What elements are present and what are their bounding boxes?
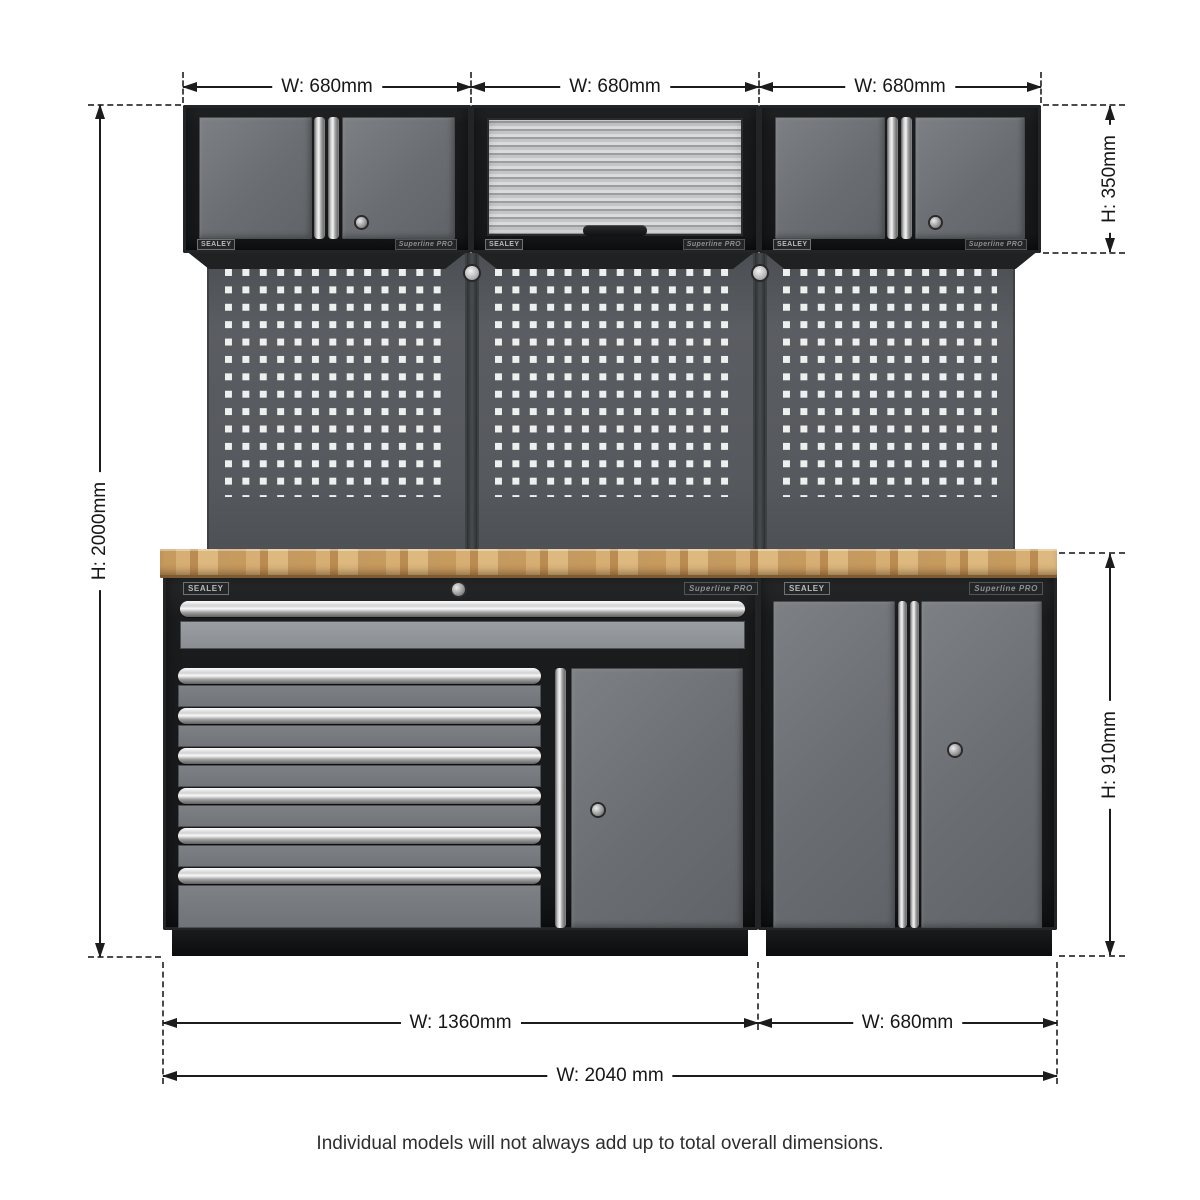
- dimension-label: W: 680mm: [845, 76, 955, 98]
- cabinet-door: [773, 601, 895, 928]
- pegboard-panel-left: [207, 253, 467, 553]
- pegboard-holes: [495, 269, 737, 497]
- drawer-handle: [178, 868, 541, 884]
- pegboard-seam: [755, 253, 765, 553]
- cabinet-door: [921, 601, 1042, 928]
- base-unit-drawers: SEALEY Superline PRO: [163, 575, 758, 930]
- wall-cabinet-underside: [471, 253, 759, 269]
- lock-icon: [452, 583, 465, 596]
- lock-icon: [356, 217, 367, 228]
- door-handle: [314, 117, 325, 239]
- cabinet-door: [571, 668, 743, 928]
- door-handle: [887, 117, 898, 239]
- plinth: [172, 930, 748, 956]
- drawer-handle: [178, 708, 541, 724]
- drawer-handle: [178, 828, 541, 844]
- brand-badge: SEALEY: [197, 239, 235, 250]
- door-handle: [328, 117, 339, 239]
- dimension-overall-width: W: 2040 mm: [163, 1075, 1057, 1077]
- dimension-label: H: 910mm: [1099, 701, 1121, 809]
- series-badge: Superline PRO: [969, 582, 1043, 595]
- series-badge: Superline PRO: [965, 239, 1027, 250]
- brand-badge: SEALEY: [773, 239, 811, 250]
- brand-badge: SEALEY: [784, 582, 830, 595]
- roller-shutter-door: [487, 118, 743, 236]
- drawer-front: [178, 805, 541, 827]
- pegboard-knob: [465, 266, 479, 280]
- pegboard-holes: [783, 269, 997, 497]
- door-handle: [901, 117, 912, 239]
- drawer-handle: [180, 601, 745, 617]
- pegboard-knob: [753, 266, 767, 280]
- dimension-wall-unit-height: H: 350mm: [1109, 106, 1111, 252]
- wall-cabinet-left: SEALEY Superline PRO: [183, 105, 471, 253]
- dimension-label: W: 2040 mm: [547, 1065, 672, 1087]
- door-handle: [910, 601, 919, 928]
- dimension-base-unit-height: H: 910mm: [1109, 554, 1111, 955]
- series-badge: Superline PRO: [684, 582, 758, 595]
- dimension-label: H: 350mm: [1099, 125, 1121, 233]
- drawer-front: [178, 765, 541, 787]
- extension-line: [1059, 552, 1125, 554]
- dimension-top-middle: W: 680mm: [471, 86, 759, 88]
- drawer-front: [178, 685, 541, 707]
- wall-cabinet-underside: [759, 253, 1041, 269]
- dimension-top-left: W: 680mm: [183, 86, 471, 88]
- drawer-handle: [178, 668, 541, 684]
- dimension-base-width-left: W: 1360mm: [163, 1022, 758, 1024]
- series-badge: Superline PRO: [395, 239, 457, 250]
- brand-badge: SEALEY: [183, 582, 229, 595]
- dimension-base-width-right: W: 680mm: [758, 1022, 1057, 1024]
- brand-badge: SEALEY: [485, 239, 523, 250]
- dimension-label: W: 680mm: [560, 76, 670, 98]
- drawer-front: [178, 725, 541, 747]
- wall-cabinet-underside: [183, 253, 471, 269]
- lock-icon: [949, 744, 961, 756]
- cabinet-door: [199, 117, 312, 239]
- wall-cabinet-right: SEALEY Superline PRO: [759, 105, 1041, 253]
- dimension-label: H: 2000mm: [89, 472, 111, 590]
- lock-icon: [592, 804, 604, 816]
- dimension-overall-height: H: 2000mm: [99, 105, 101, 957]
- dimension-label: W: 1360mm: [400, 1012, 520, 1034]
- base-unit-two-door: SEALEY Superline PRO: [758, 575, 1057, 930]
- garage-storage-system-diagram: SEALEY Superline PRO SEALEY Superline PR…: [0, 0, 1200, 1200]
- footnote-text: Individual models will not always add up…: [0, 1133, 1200, 1155]
- drawer-front-bottom: [178, 885, 541, 928]
- shutter-handle: [583, 225, 647, 236]
- plinth: [766, 930, 1052, 956]
- drawer-handle: [178, 788, 541, 804]
- lock-icon: [930, 217, 941, 228]
- pegboard-panel-right: [765, 253, 1015, 553]
- drawer-front: [178, 845, 541, 867]
- door-handle: [555, 668, 566, 928]
- extension-line: [1059, 955, 1125, 957]
- pegboard-panel-middle: [477, 253, 755, 553]
- dimension-label: W: 680mm: [853, 1012, 963, 1034]
- drawer-handle: [178, 748, 541, 764]
- pegboard-holes: [225, 269, 449, 497]
- dimension-top-right: W: 680mm: [759, 86, 1041, 88]
- wall-cabinet-middle-roller-shutter: SEALEY Superline PRO: [471, 105, 759, 253]
- series-badge: Superline PRO: [683, 239, 745, 250]
- drawer-front: [180, 621, 745, 649]
- cabinet-door: [775, 117, 885, 239]
- wooden-worktop: [160, 549, 1057, 578]
- pegboard-seam: [467, 253, 477, 553]
- dimension-label: W: 680mm: [272, 76, 382, 98]
- door-handle: [898, 601, 907, 928]
